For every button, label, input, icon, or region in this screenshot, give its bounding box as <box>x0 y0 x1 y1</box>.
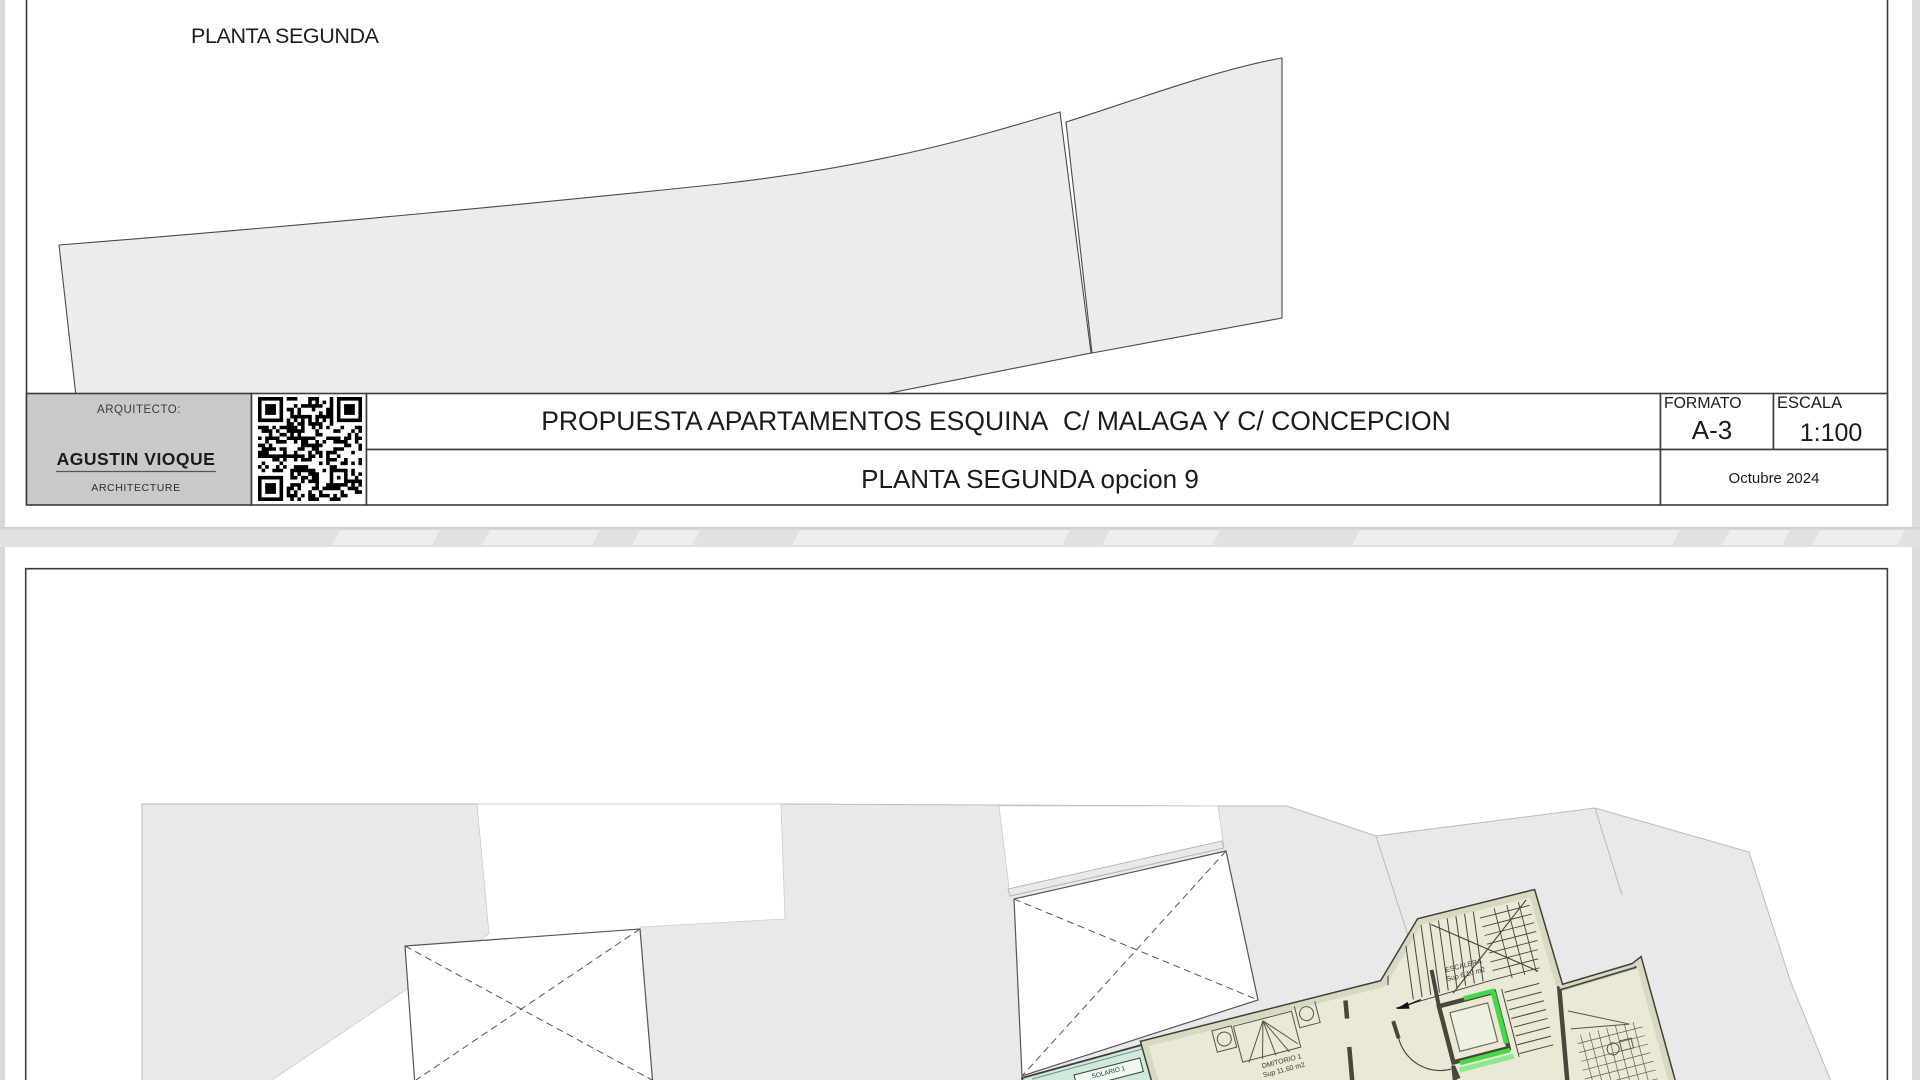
svg-text:FORMATO: FORMATO <box>1664 395 1742 412</box>
svg-text:Octubre 2024: Octubre 2024 <box>1729 470 1820 487</box>
svg-text:ESCALA: ESCALA <box>1777 394 1842 412</box>
svg-text:A-3: A-3 <box>1692 415 1732 445</box>
svg-text:1:100: 1:100 <box>1800 419 1863 447</box>
svg-text:PROPUESTA APARTAMENTOS ESQUINA: PROPUESTA APARTAMENTOS ESQUINA C/ MALAGA… <box>541 406 1451 436</box>
svg-text:ARCHITECTURE: ARCHITECTURE <box>91 482 180 494</box>
svg-text:PLANTA SEGUNDA opcion 9: PLANTA SEGUNDA opcion 9 <box>861 464 1199 494</box>
svg-text:AGUSTIN VIOQUE: AGUSTIN VIOQUE <box>57 449 216 469</box>
svg-text:PLANTA SEGUNDA: PLANTA SEGUNDA <box>191 24 380 48</box>
svg-text:ARQUITECTO:: ARQUITECTO: <box>97 404 181 416</box>
